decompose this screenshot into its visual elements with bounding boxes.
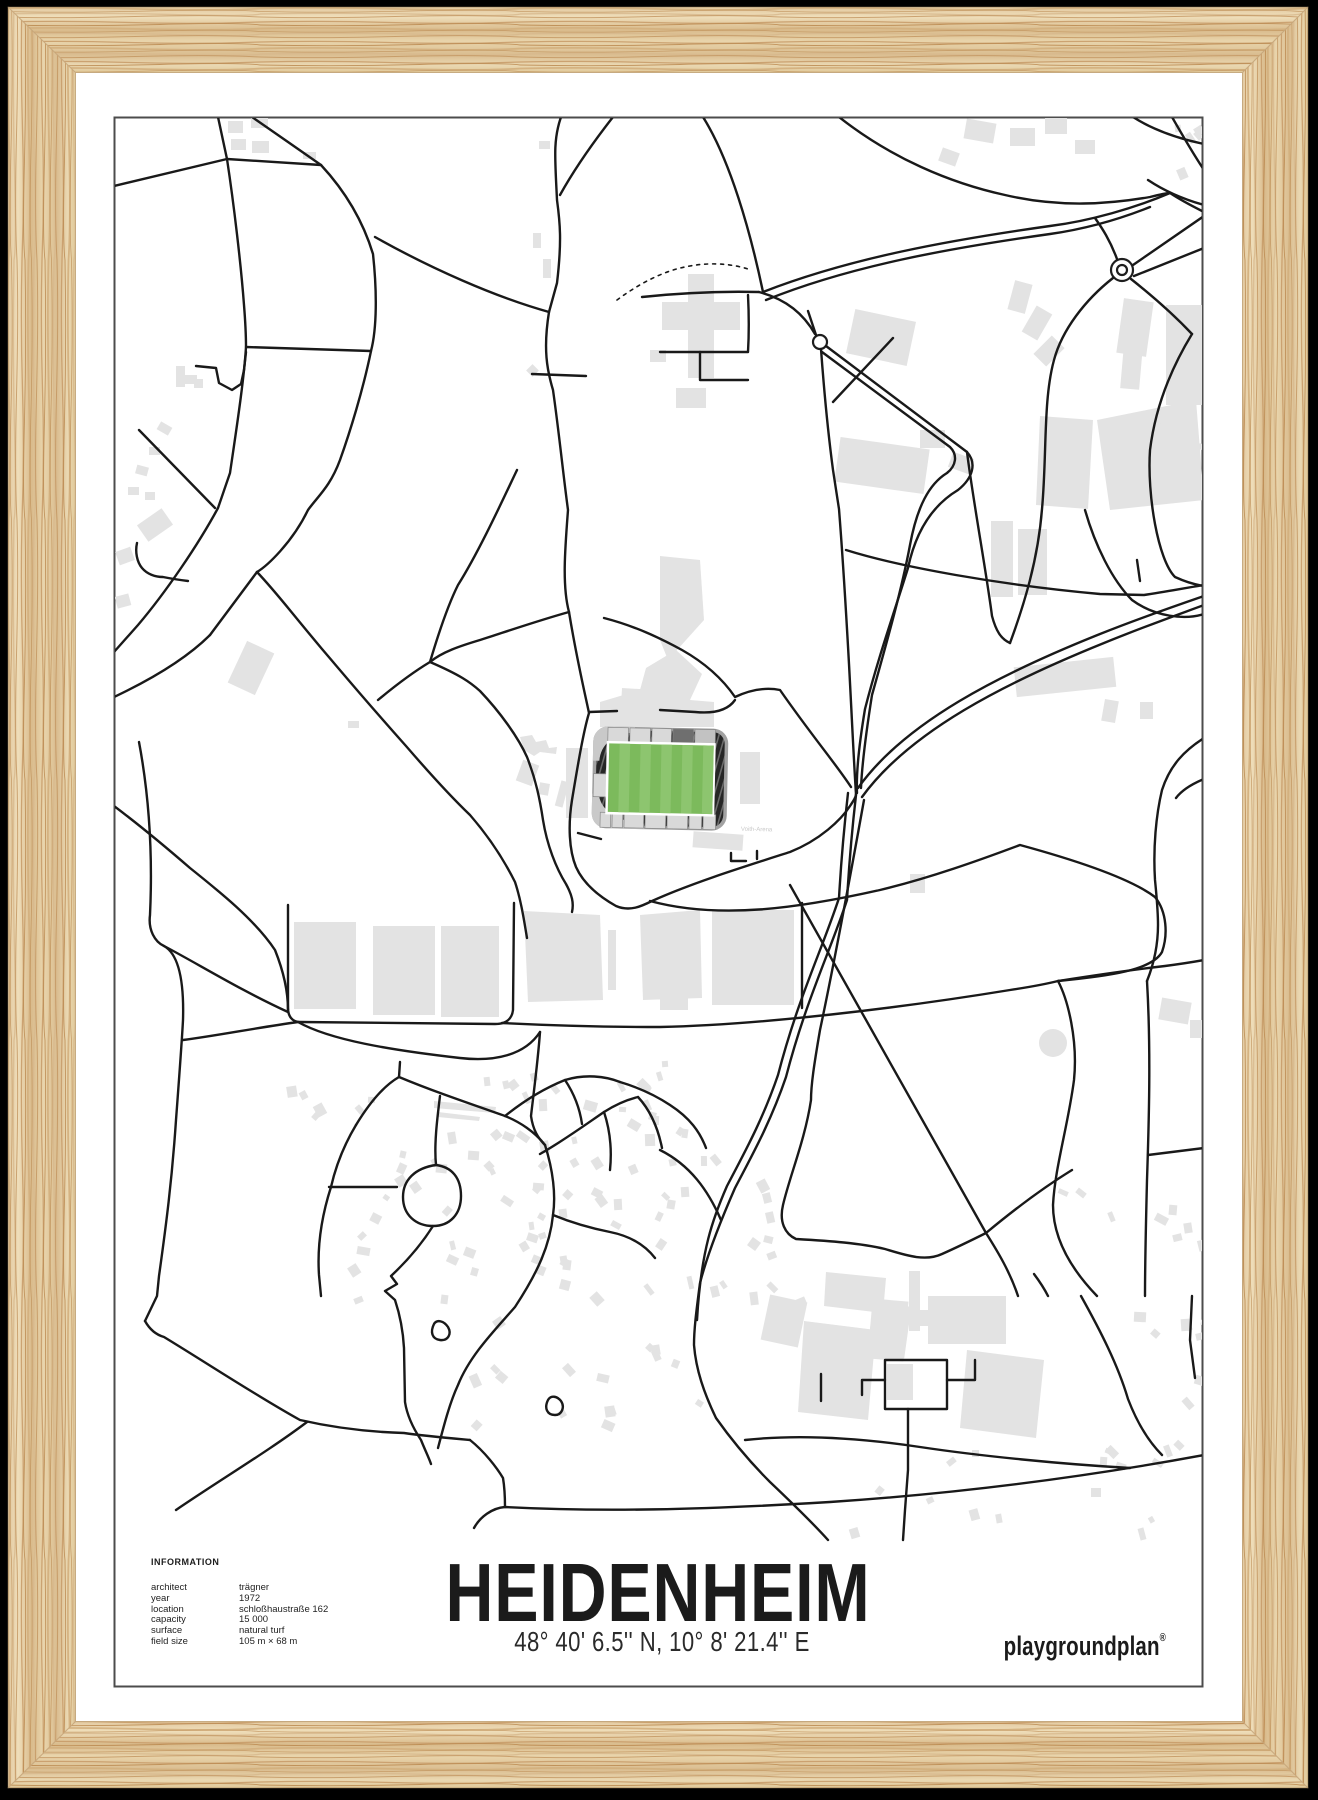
svg-text:Voith-Arena: Voith-Arena [741,827,773,834]
